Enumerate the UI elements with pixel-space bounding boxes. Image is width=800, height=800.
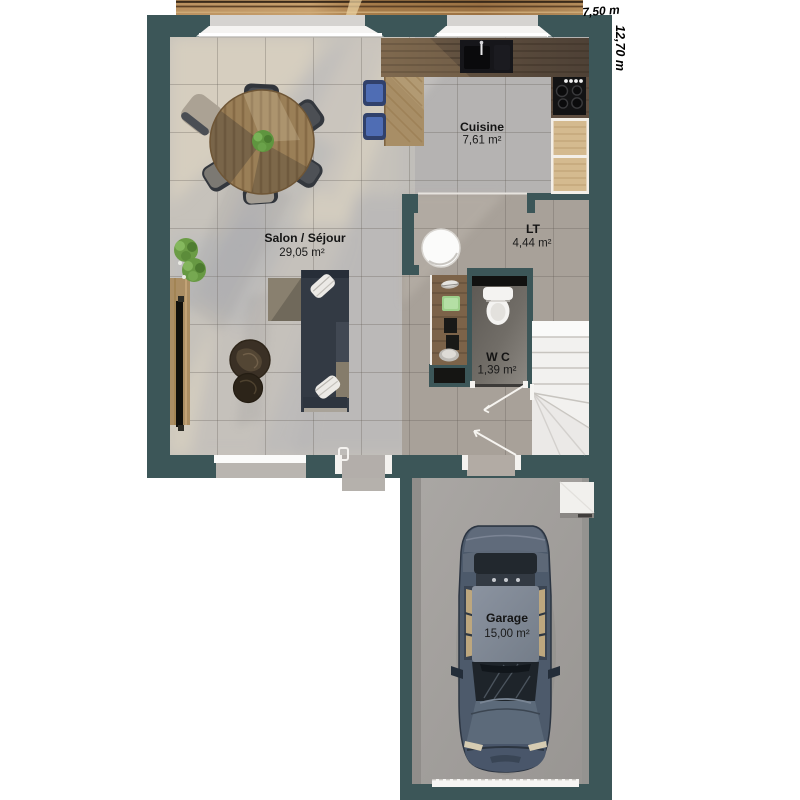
svg-text:7,50 m: 7,50 m [582,3,621,20]
svg-text:LT: LT [526,222,541,236]
svg-text:15,00 m²: 15,00 m² [484,628,530,640]
svg-text:Salon / Séjour: Salon / Séjour [264,231,346,245]
svg-text:7,61 m²: 7,61 m² [463,135,502,147]
svg-text:4,44 m²: 4,44 m² [513,238,552,250]
svg-text:12,70 m: 12,70 m [613,25,627,71]
svg-text:1,39 m²: 1,39 m² [478,365,517,377]
svg-text:29,05 m²: 29,05 m² [279,247,325,259]
svg-text:Garage: Garage [486,611,528,625]
svg-text:Cuisine: Cuisine [460,120,504,134]
svg-text:W C: W C [486,350,510,364]
